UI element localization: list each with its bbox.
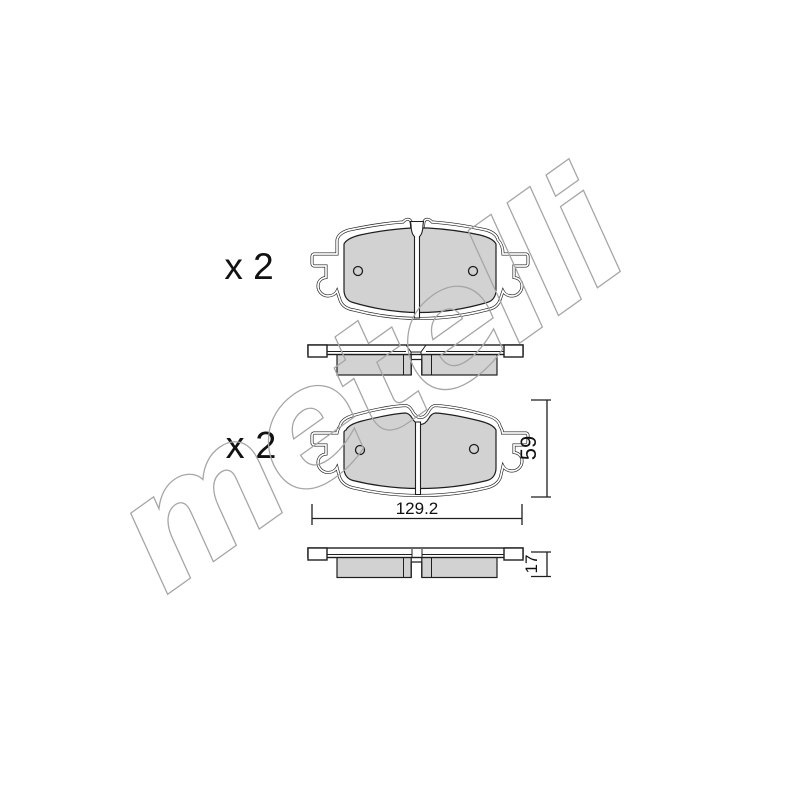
dimension-height: 59	[516, 400, 551, 497]
slot-gap-lines	[411, 562, 422, 578]
friction-block-left	[337, 557, 411, 578]
backplate-strip	[308, 548, 523, 558]
quantity-label-top: x 2	[224, 246, 273, 287]
dimension-width-label: 129.2	[396, 499, 439, 518]
end-tab-right	[504, 548, 523, 560]
drawing-svg: x 2 x 2 59 129.2	[0, 0, 800, 800]
product-image: x 2 x 2 59 129.2	[0, 0, 800, 800]
pad-bottom-edge-view	[308, 548, 523, 578]
end-tab-left	[308, 548, 327, 560]
dimension-thickness: 17	[522, 552, 551, 577]
friction-block-right	[422, 557, 497, 578]
dimension-height-label: 59	[516, 436, 541, 460]
dimension-thickness-label: 17	[522, 555, 541, 574]
